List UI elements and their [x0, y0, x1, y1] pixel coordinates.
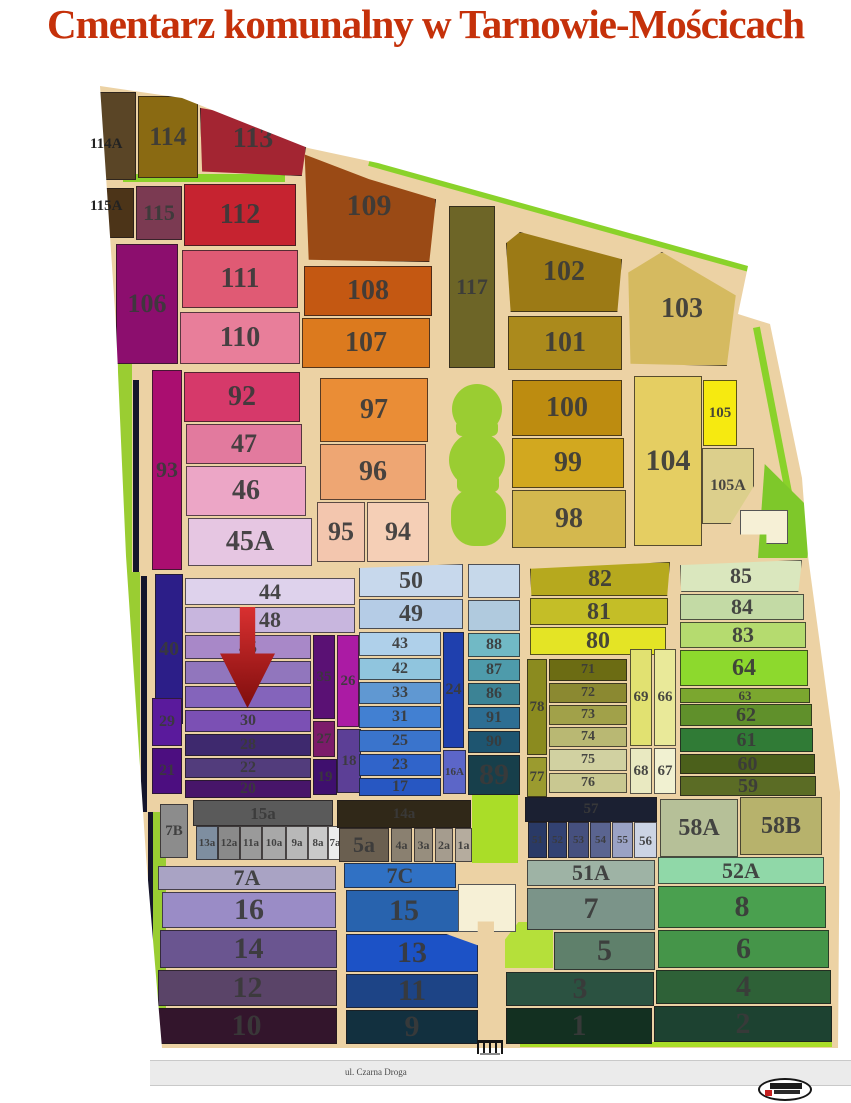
plot-45A: 45A	[188, 518, 312, 566]
plot-72: 72	[549, 683, 627, 703]
plot-91: 91	[468, 707, 520, 729]
plot-74: 74	[549, 727, 627, 747]
plot-33: 33	[359, 682, 441, 704]
plot-86: 86	[468, 683, 520, 705]
green-area	[451, 488, 506, 546]
plot-3: 3	[506, 972, 654, 1006]
plot-51A: 51A	[527, 860, 655, 886]
plot-26: 26	[337, 635, 359, 727]
plot-83: 83	[680, 622, 806, 648]
plot-82: 82	[530, 562, 670, 596]
plot-1a: 1a	[455, 828, 472, 862]
plot-60: 60	[680, 754, 815, 774]
plot-18: 18	[337, 729, 361, 793]
plot-63: 63	[680, 688, 810, 703]
plot-7: 7	[527, 888, 655, 930]
plot-71: 71	[549, 659, 627, 681]
gate-caption-smudge	[480, 1053, 500, 1055]
plot-78: 78	[527, 659, 547, 755]
plot-20: 20	[185, 780, 311, 798]
building	[458, 884, 516, 932]
plot-43: 43	[359, 632, 441, 656]
plot-85: 85	[680, 560, 802, 592]
plot-75: 75	[549, 749, 627, 771]
plot-108: 108	[304, 266, 432, 316]
plot-106: 106	[116, 244, 178, 364]
plot-10a: 10a	[262, 826, 286, 860]
plot-114: 114	[138, 96, 198, 178]
plot-7C: 7C	[344, 863, 456, 888]
plot-6: 6	[658, 930, 829, 968]
logo-red-mark	[765, 1090, 772, 1096]
plot-99: 99	[512, 438, 624, 488]
plot-edge-label-115A: 115A	[90, 198, 123, 215]
plot-62: 62	[680, 704, 812, 726]
plot-110: 110	[180, 312, 300, 364]
plot-101: 101	[508, 316, 622, 370]
plot-13: 13	[346, 934, 478, 972]
plot-48: 48	[185, 607, 355, 633]
plot-102: 102	[506, 232, 622, 312]
plot-104: 104	[634, 376, 702, 546]
plot-14: 14	[160, 930, 337, 968]
plot-25: 25	[359, 730, 441, 752]
plot-90: 90	[468, 731, 520, 753]
plot-9a: 9a	[286, 826, 308, 860]
plot-105: 105	[703, 380, 737, 446]
plot-46: 46	[186, 466, 306, 516]
plot-59: 59	[680, 776, 816, 796]
plot-96: 96	[320, 444, 426, 500]
plot-11: 11	[346, 974, 478, 1008]
plot-2: 2	[654, 1006, 832, 1042]
plot-11a: 11a	[240, 826, 262, 860]
plot-4: 4	[656, 970, 831, 1004]
plot-55: 55	[612, 822, 633, 858]
plot-52: 52	[548, 822, 567, 858]
plot-15: 15	[346, 890, 462, 932]
plot-unlabeled	[468, 564, 520, 598]
plot-9: 9	[346, 1010, 478, 1044]
plot-24: 24	[443, 632, 464, 748]
green-area	[118, 332, 132, 572]
plot-14a: 14a	[337, 800, 471, 828]
logo-mark	[770, 1083, 802, 1089]
plot-44: 44	[185, 578, 355, 605]
plot-49: 49	[359, 599, 463, 629]
gate-bars	[477, 1040, 503, 1054]
plot-117: 117	[449, 206, 495, 368]
plot-87: 87	[468, 659, 520, 681]
plot-22: 22	[185, 758, 311, 778]
plot-54: 54	[590, 822, 611, 858]
plot-5: 5	[554, 932, 655, 970]
plot-56: 56	[634, 822, 657, 858]
plot-77: 77	[527, 757, 547, 797]
plot-100: 100	[512, 380, 622, 436]
road-label: ul. Czarna Droga	[345, 1067, 407, 1077]
plot-3a: 3a	[414, 828, 433, 862]
publisher-logo	[758, 1078, 812, 1101]
plot-67: 67	[654, 748, 676, 794]
plot-112: 112	[184, 184, 296, 246]
plot-edge-label-114A: 114A	[90, 136, 123, 153]
plot-23: 23	[359, 754, 441, 776]
plot-8a: 8a	[308, 826, 328, 860]
plot-69: 69	[630, 649, 652, 746]
plot-103: 103	[626, 252, 738, 366]
plot-30: 30	[185, 710, 311, 732]
plot-42: 42	[359, 658, 441, 680]
plot-93: 93	[152, 370, 182, 570]
plot-88: 88	[468, 633, 520, 657]
plot-58A: 58A	[660, 799, 738, 857]
plot-92: 92	[184, 372, 300, 422]
page-title: Cmentarz komunalny w Tarnowie-Mościcach	[0, 0, 851, 48]
plot-73: 73	[549, 705, 627, 725]
plot-27: 27	[313, 721, 335, 757]
boundary-shadow	[148, 812, 153, 1044]
plot-21: 21	[152, 748, 182, 794]
cemetery-map: 1141131151121111101061091081071171021011…	[0, 0, 851, 1103]
plot-68: 68	[630, 748, 652, 794]
plot-76: 76	[549, 773, 627, 793]
plot-12a: 12a	[218, 826, 240, 860]
plot-7A: 7A	[158, 866, 336, 890]
plot-95: 95	[317, 502, 365, 562]
plot-109: 109	[302, 150, 436, 262]
plot-61: 61	[680, 728, 813, 752]
plot-66: 66	[654, 649, 676, 746]
plot-50: 50	[359, 564, 463, 597]
plot-2a: 2a	[435, 828, 453, 862]
plot-94: 94	[367, 502, 429, 562]
green-area	[472, 793, 518, 863]
plot-111: 111	[182, 250, 298, 308]
plot-unlabeled	[468, 600, 520, 631]
plot-98: 98	[512, 490, 626, 548]
plot-113: 113	[200, 102, 306, 176]
plot-35: 35	[313, 635, 335, 719]
green-area	[456, 420, 498, 436]
plot-31: 31	[359, 706, 441, 728]
plot-5a: 5a	[339, 828, 389, 862]
boundary-shadow	[133, 380, 139, 572]
plot-81: 81	[530, 598, 668, 625]
plot-97: 97	[320, 378, 428, 442]
logo-mark	[774, 1090, 800, 1094]
boundary-shadow	[141, 576, 147, 812]
plot-17: 17	[359, 778, 441, 796]
plot-107: 107	[302, 318, 430, 368]
plot-29: 29	[152, 698, 182, 746]
green-area	[457, 474, 499, 492]
plot-115: 115	[136, 186, 182, 240]
main-gate-icon	[477, 1036, 503, 1056]
plot-19: 19	[313, 759, 337, 795]
plot-12: 12	[158, 970, 337, 1006]
plot-64: 64	[680, 650, 808, 686]
plot-28: 28	[185, 734, 311, 756]
plot-58B: 58B	[740, 797, 822, 855]
plot-10: 10	[156, 1008, 337, 1044]
plot-47: 47	[186, 424, 302, 464]
plot-89: 89	[468, 755, 520, 795]
plot-15a: 15a	[193, 800, 333, 826]
plot-1: 1	[506, 1008, 652, 1044]
plot-57: 57	[525, 797, 657, 822]
plot-13a: 13a	[196, 826, 218, 860]
plot-16: 16	[162, 892, 336, 928]
plot-4a: 4a	[391, 828, 412, 862]
plot-84: 84	[680, 594, 804, 620]
green-area	[126, 572, 140, 812]
plot-51: 51	[528, 822, 547, 858]
page: Cmentarz komunalny w Tarnowie-Mościcach …	[0, 0, 851, 1103]
plot-16A: 16A	[443, 750, 466, 794]
road-czarna-droga: ul. Czarna Droga	[150, 1060, 851, 1086]
plot-52A: 52A	[658, 857, 824, 884]
plot-53: 53	[568, 822, 589, 858]
plot-7B: 7B	[160, 804, 188, 858]
plot-8: 8	[658, 886, 826, 928]
